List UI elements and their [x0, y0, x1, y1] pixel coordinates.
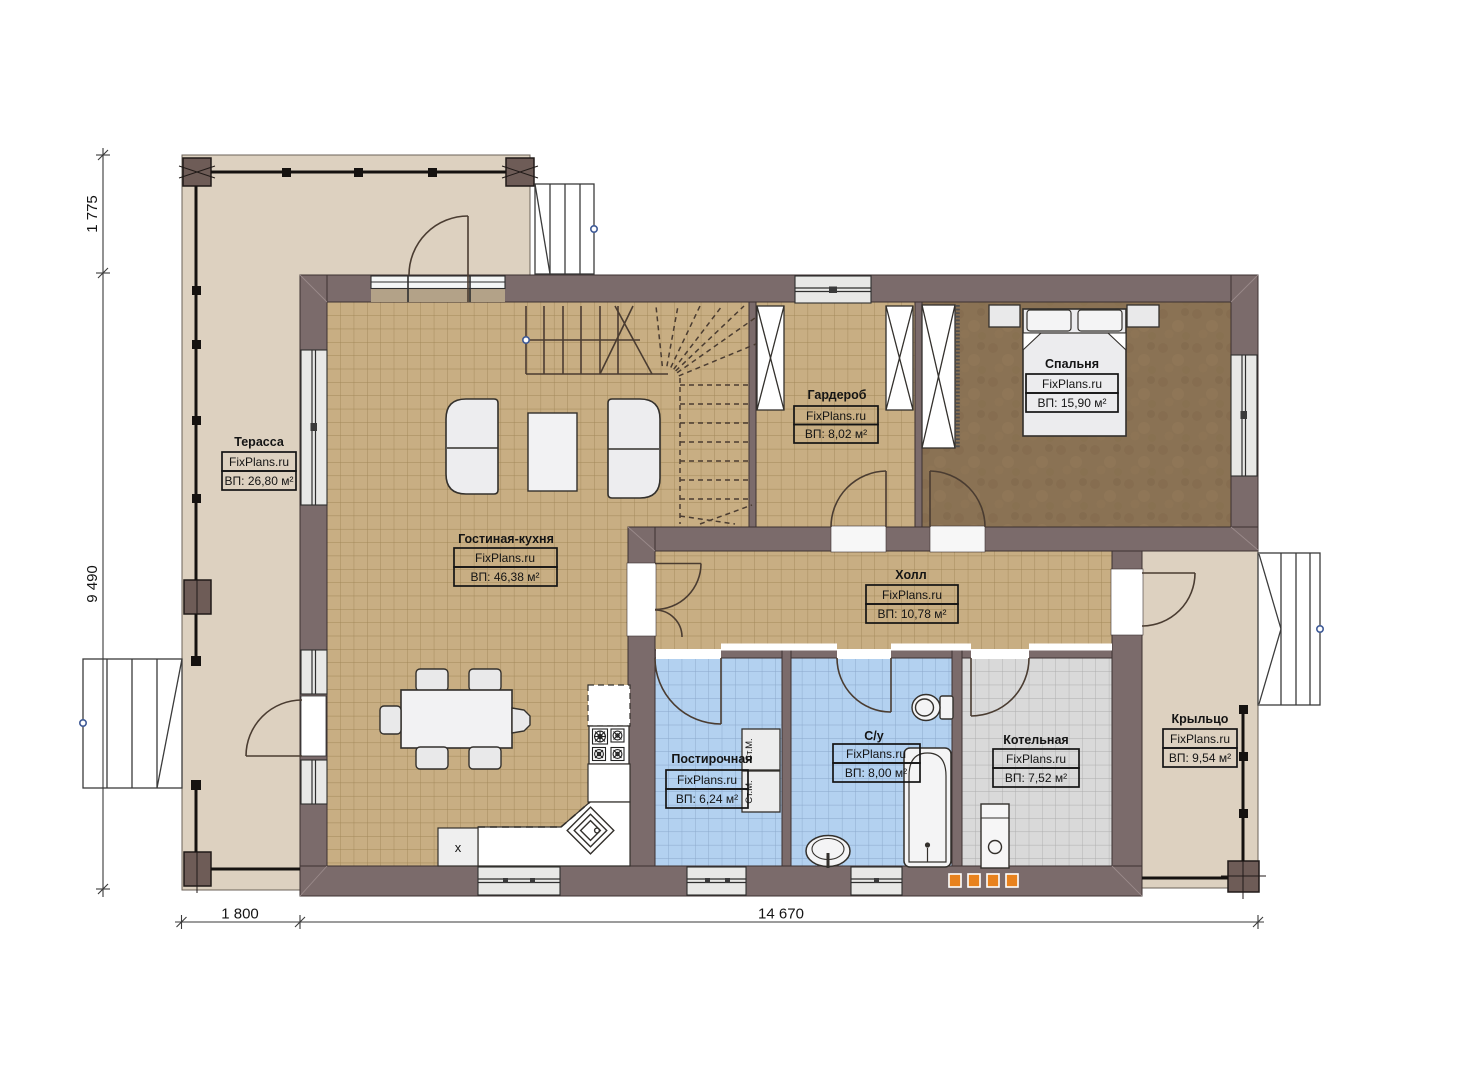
svg-text:FixPlans.ru: FixPlans.ru — [475, 551, 535, 565]
svg-text:Крыльцо: Крыльцо — [1172, 712, 1229, 726]
svg-text:FixPlans.ru: FixPlans.ru — [677, 773, 737, 787]
svg-text:Спальня: Спальня — [1045, 357, 1099, 371]
svg-text:FixPlans.ru: FixPlans.ru — [1006, 752, 1066, 766]
svg-text:Холл: Холл — [895, 568, 926, 582]
svg-text:FixPlans.ru: FixPlans.ru — [229, 455, 289, 469]
svg-text:ВП: 46,38 м²: ВП: 46,38 м² — [471, 570, 540, 584]
svg-text:Постирочная: Постирочная — [671, 752, 752, 766]
svg-text:ВП: 6,24 м²: ВП: 6,24 м² — [676, 792, 738, 806]
svg-text:Ст.М.: Ст.М. — [744, 780, 755, 803]
svg-text:ВП: 8,00 м²: ВП: 8,00 м² — [845, 766, 907, 780]
svg-text:Гостиная-кухня: Гостиная-кухня — [458, 532, 554, 546]
svg-text:14 670: 14 670 — [758, 906, 804, 923]
svg-text:x: x — [455, 840, 462, 855]
svg-text:Котельная: Котельная — [1003, 733, 1068, 747]
svg-text:9 490: 9 490 — [84, 565, 101, 603]
svg-text:FixPlans.ru: FixPlans.ru — [1170, 732, 1230, 746]
svg-text:ВП: 26,80 м²: ВП: 26,80 м² — [225, 474, 294, 488]
svg-text:ВП: 9,54 м²: ВП: 9,54 м² — [1169, 751, 1231, 765]
svg-text:FixPlans.ru: FixPlans.ru — [882, 588, 942, 602]
svg-text:FixPlans.ru: FixPlans.ru — [846, 747, 906, 761]
svg-text:ВП: 7,52 м²: ВП: 7,52 м² — [1005, 771, 1067, 785]
svg-text:1 775: 1 775 — [84, 195, 101, 233]
svg-text:ВП: 10,78 м²: ВП: 10,78 м² — [878, 607, 947, 621]
svg-text:ВП: 8,02 м²: ВП: 8,02 м² — [805, 427, 867, 441]
svg-text:Терасса: Терасса — [234, 435, 285, 449]
svg-text:FixPlans.ru: FixPlans.ru — [1042, 377, 1102, 391]
svg-text:FixPlans.ru: FixPlans.ru — [806, 409, 866, 423]
svg-text:ВП: 15,90 м²: ВП: 15,90 м² — [1038, 396, 1107, 410]
svg-text:1 800: 1 800 — [221, 906, 259, 923]
svg-text:Гардероб: Гардероб — [807, 388, 866, 402]
svg-text:С/у: С/у — [864, 729, 884, 743]
